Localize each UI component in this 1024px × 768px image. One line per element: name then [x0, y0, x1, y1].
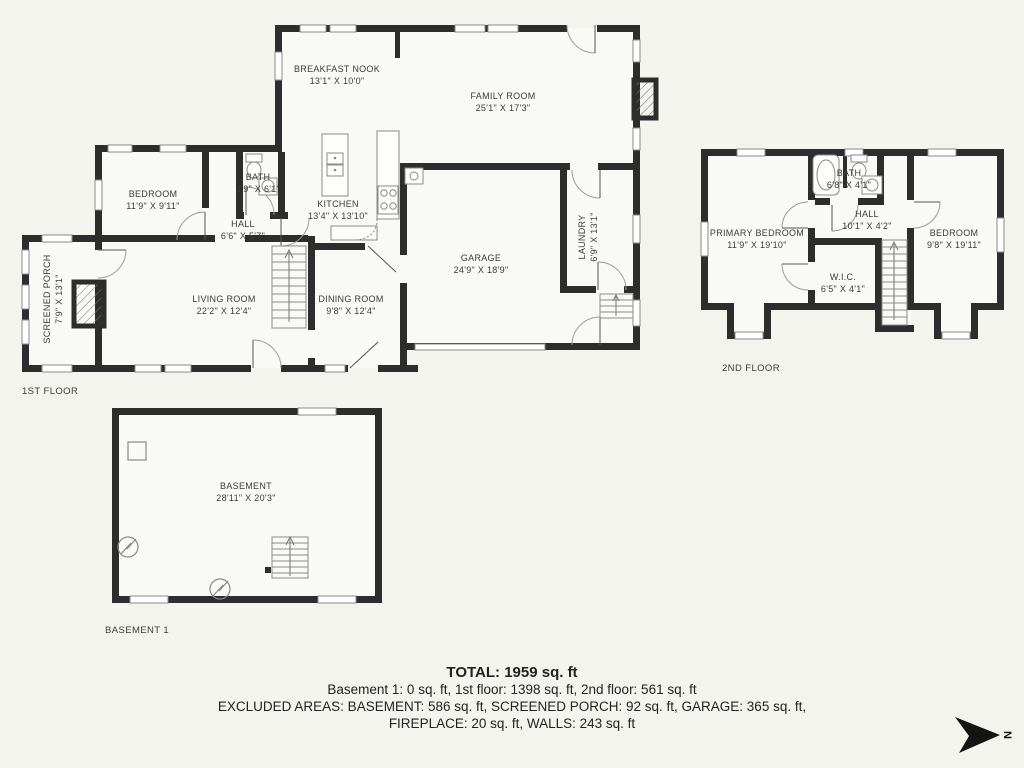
toilet-tank	[246, 154, 262, 162]
toilet-tank	[851, 155, 867, 162]
floor-plan-drawing: N	[0, 0, 1024, 768]
room-label-hall-2f: HALL10'1" X 4'2"	[842, 208, 891, 232]
first-floor-tag: 1ST FLOOR	[22, 386, 78, 397]
room-label-primary-bedroom: PRIMARY BEDROOM11'9" X 19'10"	[710, 227, 804, 251]
summary-excluded-line1: EXCLUDED AREAS: BASEMENT: 586 sq. ft, SC…	[0, 698, 1024, 715]
room-label-breakfast-nook: BREAKFAST NOOK13'1" X 10'0"	[294, 63, 380, 87]
room-label-bedroom-1f: BEDROOM11'9" X 9'11"	[126, 188, 179, 212]
room-label-laundry: LAUNDRY6'9" X 13'1"	[576, 212, 600, 261]
room-label-bath-1f: BATH3'9" X 6'1"	[236, 171, 280, 195]
basement-plan	[112, 408, 382, 603]
room-label-bath-2f: BATH6'8" X 4'1"	[827, 167, 871, 191]
summary-excluded-line2: FIREPLACE: 20 sq. ft, WALLS: 243 sq. ft	[0, 715, 1024, 732]
room-label-basement: BASEMENT28'11" X 20'3"	[216, 480, 275, 504]
room-label-living-room: LIVING ROOM22'2" X 12'4"	[192, 293, 255, 317]
room-label-bedroom-2f: BEDROOM9'8" X 19'11"	[927, 227, 981, 251]
room-label-wic: W.I.C.6'5" X 4'1"	[821, 271, 865, 295]
basement-area	[115, 411, 379, 600]
summary-floors-line: Basement 1: 0 sq. ft, 1st floor: 1398 sq…	[0, 681, 1024, 698]
room-label-kitchen: KITCHEN13'4" X 13'10"	[308, 198, 368, 222]
room-label-hall-1f: HALL6'6" X 5'7"	[221, 218, 265, 242]
compass-north-letter: N	[1001, 731, 1013, 739]
room-label-garage: GARAGE24'9" X 18'9"	[454, 252, 509, 276]
room-label-family-room: FAMILY ROOM25'1" X 17'3"	[471, 90, 536, 114]
garage-door	[415, 344, 545, 350]
area-summary: TOTAL: 1959 sq. ft Basement 1: 0 sq. ft,…	[0, 664, 1024, 732]
utility-sink	[405, 168, 423, 184]
fireplace-family-room	[634, 80, 656, 118]
fireplace-porch	[74, 282, 104, 326]
second-floor-tag: 2ND FLOOR	[722, 363, 780, 374]
summary-total: TOTAL: 1959 sq. ft	[0, 664, 1024, 681]
room-label-dining-room: DINING ROOM9'8" X 12'4"	[318, 293, 383, 317]
floor-plan-page: N BREAKFAST NOOK13'1" X 10'0" FAMILY ROO…	[0, 0, 1024, 768]
basement-tag: BASEMENT 1	[105, 625, 169, 636]
room-label-screened-porch: SCREENED PORCH7'9" X 13'1"	[41, 254, 65, 343]
